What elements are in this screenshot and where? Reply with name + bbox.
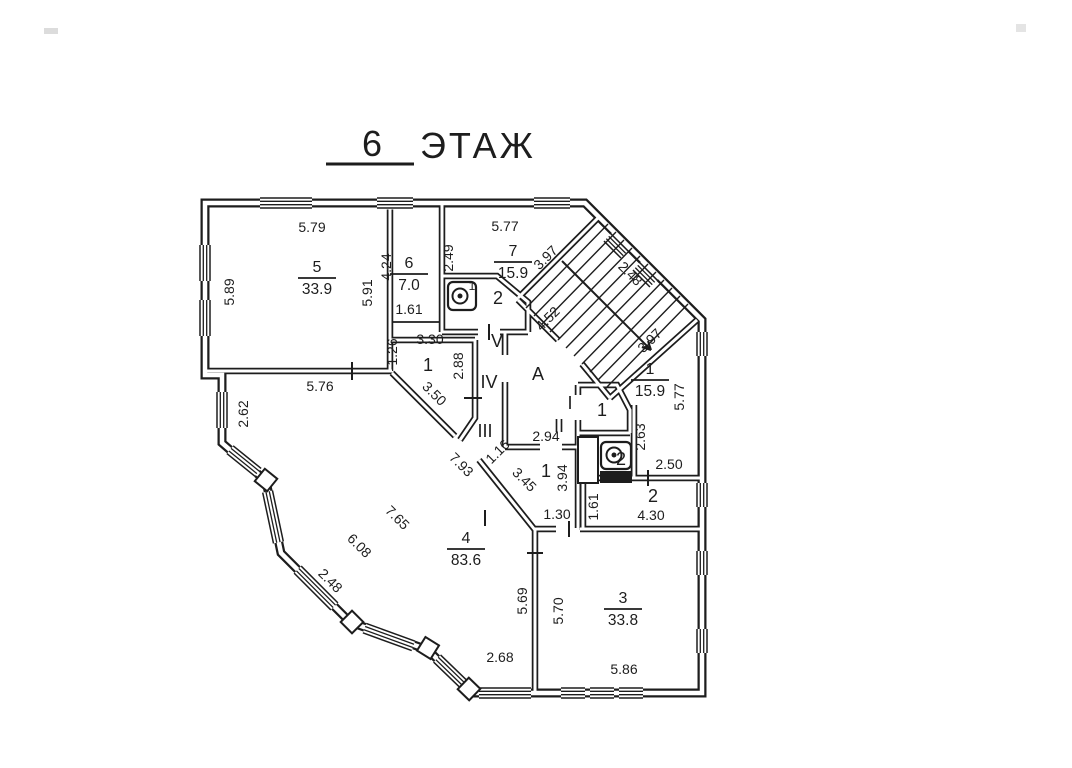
dimension-label: 2.88 [450,352,466,379]
dimension-label: 5.77 [671,383,687,410]
room-label: 2 [616,449,626,469]
room-label: 2 [648,486,658,506]
room-number: 7 [509,243,518,260]
window [590,687,614,700]
scanned-floorplan-page: 6 ЭТАЖ [0,0,1072,768]
room-number: 6 [405,255,414,272]
duct-shaft [578,437,598,483]
dimension-label: 1.30 [543,506,570,522]
dimension-label: 4.24 [378,253,394,280]
dimension-label: 2.49 [440,244,456,271]
drawing-title: 6 ЭТАЖ [326,123,536,166]
room-area: 33.9 [302,281,332,298]
room-number: 3 [619,590,628,607]
room-area: 33.8 [608,612,638,629]
room-label: 1 [541,461,551,481]
window [696,483,709,507]
window [696,629,709,653]
window [199,300,212,336]
dimension-label: 3.30 [416,331,443,347]
dimension-label: 5.89 [221,278,237,305]
room-area: 83.6 [451,552,481,569]
room-label: V [491,331,503,351]
dimension-label: 5.69 [514,587,530,614]
room-area: 15.9 [498,265,528,282]
dimension-label: 1.26 [384,338,400,365]
dimension-label: 5.70 [550,597,566,624]
room-label: 1 [469,279,476,293]
window [619,687,643,700]
window [199,245,212,281]
room-number: 1 [646,361,655,378]
window [216,392,229,428]
window [696,332,709,356]
dimension-label: 1.61 [395,301,422,317]
dimension-label: 5.86 [610,661,637,677]
dimension-label: 1.61 [585,493,601,520]
dimension-label: 5.77 [491,218,518,234]
room-label: 2 [493,288,503,308]
window [260,197,312,210]
window [696,551,709,575]
room-area: 7.0 [398,277,420,294]
dimension-label: 2.63 [632,423,648,450]
room-number: 5 [313,259,322,276]
dimension-label: 3.94 [554,464,570,491]
room-label: III [477,421,492,441]
dimension-label: 5.76 [306,378,333,394]
vent-shaft [600,471,632,483]
room-label: II [554,416,564,436]
window [561,687,585,700]
floor-word: ЭТАЖ [420,125,536,166]
scan-artifact [1016,24,1026,32]
room-area: 15.9 [635,383,665,400]
room-number: 4 [462,530,471,547]
room-label: A [532,364,544,384]
dimension-label: 2.50 [655,456,682,472]
dimension-label: 2.68 [486,649,513,665]
dimension-label: 4.30 [637,507,664,523]
scan-artifact [44,28,58,34]
dimension-label: 2.62 [235,400,251,427]
dimension-label: 5.79 [298,219,325,235]
window [534,197,570,210]
dimension-label: 5.91 [359,279,375,306]
window [479,687,531,700]
room-label: 1 [423,355,433,375]
floor-plan-svg: 6 ЭТАЖ [0,0,1072,768]
floor-number: 6 [362,123,382,164]
room-label: 1 [597,400,607,420]
room-label: I [567,393,572,413]
window [377,197,413,210]
room-label: IV [480,372,497,392]
